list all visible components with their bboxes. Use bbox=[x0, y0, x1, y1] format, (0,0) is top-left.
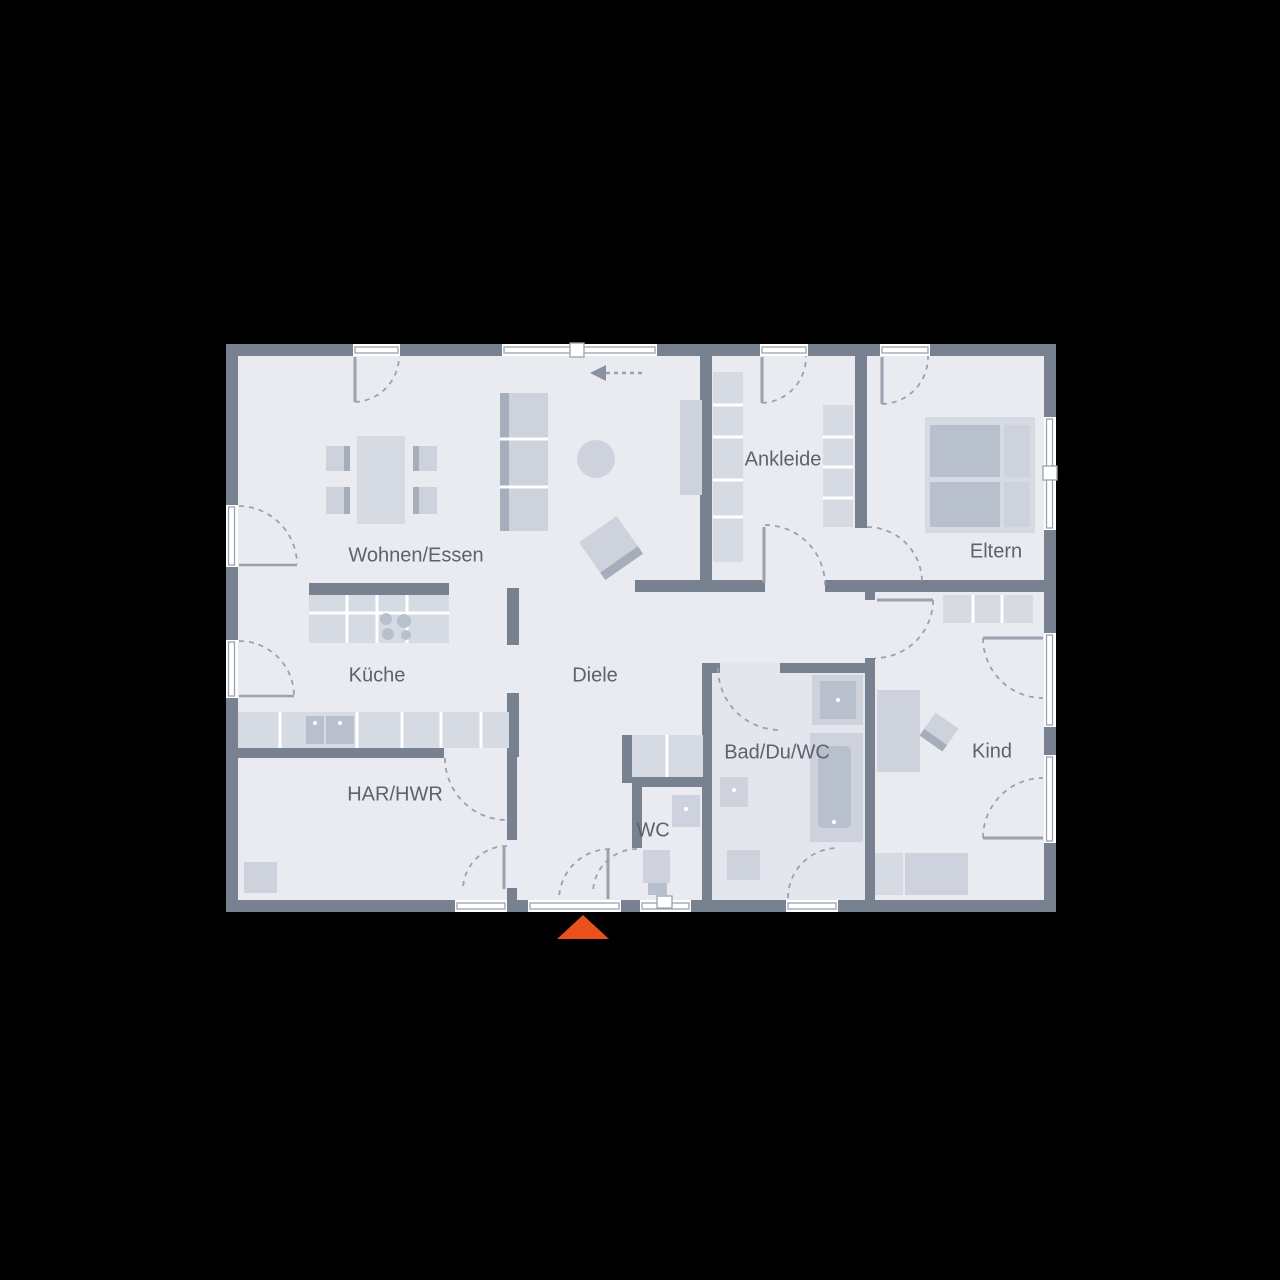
room-label-kind: Kind bbox=[972, 741, 1012, 764]
room-label-kueche: Küche bbox=[349, 665, 406, 688]
floorplan-canvas: Wohnen/Essen Küche Diele HAR/HWR WC Bad/… bbox=[0, 0, 1280, 1280]
room-label-har-hwr: HAR/HWR bbox=[347, 784, 443, 807]
room-label-ankleide: Ankleide bbox=[745, 449, 822, 472]
room-label-bad-du-wc: Bad/Du/WC bbox=[724, 742, 830, 765]
room-label-eltern: Eltern bbox=[970, 541, 1022, 564]
room-labels: Wohnen/Essen Küche Diele HAR/HWR WC Bad/… bbox=[0, 0, 1280, 1280]
room-label-diele: Diele bbox=[572, 665, 618, 688]
room-label-wc: WC bbox=[636, 820, 669, 843]
room-label-wohnen-essen: Wohnen/Essen bbox=[348, 545, 483, 568]
